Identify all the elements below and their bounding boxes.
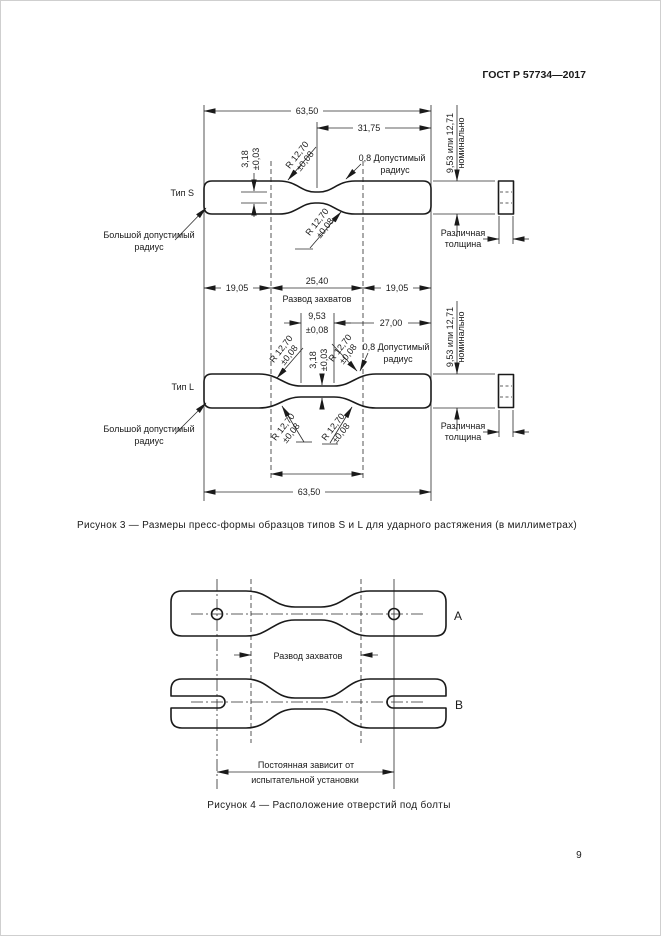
big-radius-l-line2: радиус xyxy=(134,436,164,446)
constant-dim-line2: испытательной установки xyxy=(251,775,359,785)
specimen-type-s-outline xyxy=(204,181,431,214)
specimen-b-letter: В xyxy=(455,698,463,712)
svg-text:R 12,70±0,08: R 12,70±0,08 xyxy=(319,411,354,448)
radius-callout-l-bottom-right: R 12,70±0,08 xyxy=(319,411,354,448)
var-thickness-s-line2: толщина xyxy=(445,239,482,249)
neck-length-value: 9,53 xyxy=(308,311,326,321)
neck-length-tolerance: ±0,08 xyxy=(306,325,328,335)
svg-text:3,18±0,03: 3,18±0,03 xyxy=(308,349,329,371)
radius-callout-s-bottom: R 12,70±0,08 xyxy=(303,206,338,243)
figure4-caption: Рисунок 4 — Расположение отверстий под б… xyxy=(207,799,450,811)
side-view-type-s xyxy=(499,181,514,214)
big-radius-l-line1: Большой допустимый xyxy=(103,424,194,434)
document-header: ГОСТ Р 57734—2017 xyxy=(482,69,586,81)
document-page: 63,50 31,75 19,05 19,05 25,40 Развод зах… xyxy=(0,0,661,936)
type-s-label: Тип S xyxy=(170,188,194,198)
allow-radius-s-line1: 0,8 Допустимый xyxy=(359,153,426,163)
page-number: 9 xyxy=(576,850,582,861)
figure3-drawing: 63,50 31,75 19,05 19,05 25,40 Развод зах… xyxy=(77,105,577,531)
specimen-type-l-outline xyxy=(204,374,431,408)
svg-text:R 12,70±0,08: R 12,70±0,08 xyxy=(303,206,338,243)
big-radius-s-line2: радиус xyxy=(134,242,164,252)
radius-callout-l-top-right: R 12,70±0,08 xyxy=(326,332,361,369)
fig4-jaw-separation-text: Развод захватов xyxy=(274,651,343,661)
svg-text:3,18±0,03: 3,18±0,03 xyxy=(240,148,261,170)
page-drawing: 63,50 31,75 19,05 19,05 25,40 Развод зах… xyxy=(1,1,661,936)
svg-text:R 12,70±0,08: R 12,70±0,08 xyxy=(326,332,361,369)
figure3-caption: Рисунок 3 — Размеры пресс-формы образцов… xyxy=(77,519,577,531)
thickness-dim-type-s: 9,53 или 12,71номинально xyxy=(445,113,466,173)
var-thickness-l-line1: Различная xyxy=(441,421,486,431)
allow-radius-s-line2: радиус xyxy=(380,165,410,175)
radius-callout-l-bottom-left: R 12,70±0,08 xyxy=(269,411,304,448)
svg-text:R 12,70±0,08: R 12,70±0,08 xyxy=(267,333,302,370)
svg-text:R 12,70±0,08: R 12,70±0,08 xyxy=(269,411,304,448)
jaw-separation-text: Развод захватов xyxy=(283,294,352,304)
big-radius-s-line1: Большой допустимый xyxy=(103,230,194,240)
dim-grip-right-label: 19,05 xyxy=(386,283,409,293)
dim-overall-top-label: 63,50 xyxy=(296,106,319,116)
neck-width-dim-type-l: 3,18±0,03 xyxy=(308,349,329,371)
dim-27-label: 27,00 xyxy=(380,318,403,328)
allow-radius-l-line1: 0,8 Допустимый xyxy=(363,342,430,352)
allow-radius-l-line2: радиус xyxy=(383,354,413,364)
dim-half-label: 31,75 xyxy=(358,123,381,133)
svg-text:9,53 или 12,71номинально: 9,53 или 12,71номинально xyxy=(445,113,466,173)
figure4-drawing: Развод захватов А В Постоянная зависит о… xyxy=(171,579,463,811)
side-view-type-l xyxy=(499,375,514,408)
dim-grip-left-label: 19,05 xyxy=(226,283,249,293)
specimen-b-outline xyxy=(171,679,446,728)
type-l-label: Тип L xyxy=(171,382,194,392)
var-thickness-s-line1: Различная xyxy=(441,228,486,238)
svg-text:R 12,70±0,08: R 12,70±0,08 xyxy=(283,139,318,176)
neck-width-dim-type-s: 3,18±0,03 xyxy=(240,148,261,170)
svg-text:9,53 или 12,71номинально: 9,53 или 12,71номинально xyxy=(445,307,466,367)
thickness-dim-type-l: 9,53 или 12,71номинально xyxy=(445,307,466,367)
var-thickness-l-line2: толщина xyxy=(445,432,482,442)
constant-dim-line1: Постоянная зависит от xyxy=(258,760,354,770)
specimen-a-letter: А xyxy=(454,609,462,623)
radius-callout-s-top: R 12,70±0,08 xyxy=(283,139,318,176)
dim-jaw-label: 25,40 xyxy=(306,276,329,286)
radius-callout-l-top-left: R 12,70±0,08 xyxy=(267,333,302,370)
dim-overall-bottom-label: 63,50 xyxy=(298,487,321,497)
